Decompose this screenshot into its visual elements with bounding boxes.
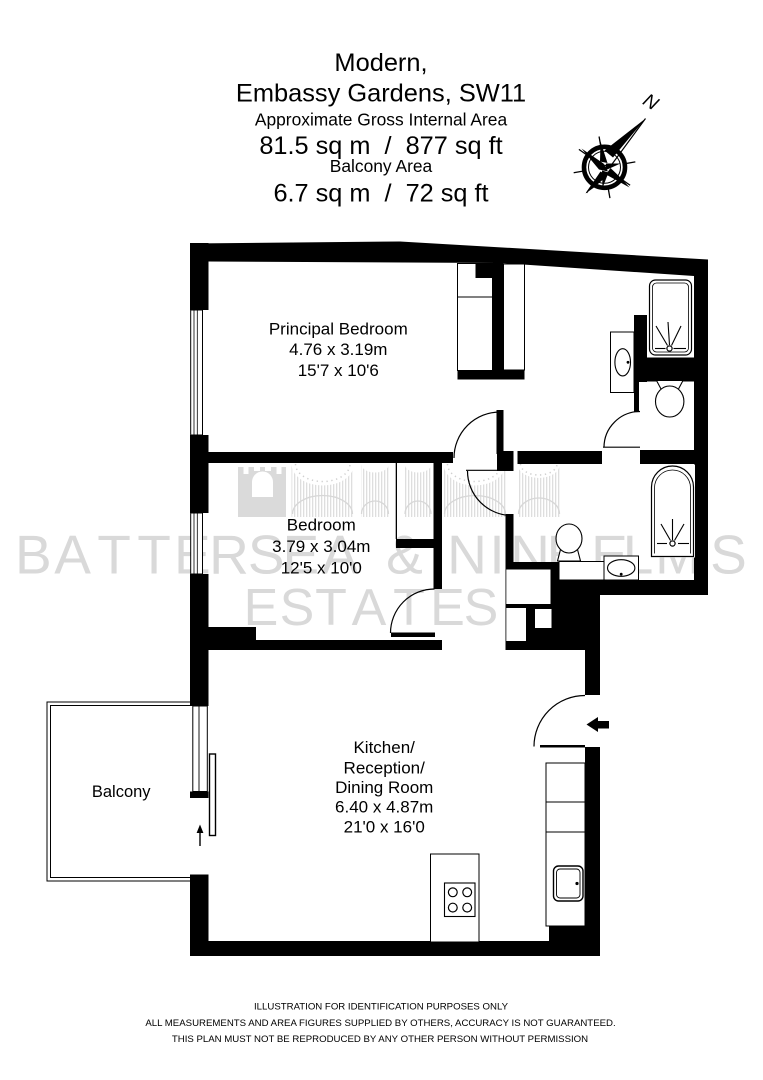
svg-text:Approximate Gross Internal Are: Approximate Gross Internal Area [255, 110, 508, 130]
svg-text:A: A [352, 579, 387, 637]
svg-text:T: T [97, 524, 131, 586]
svg-text:Reception/: Reception/ [344, 758, 426, 777]
svg-text:Balcony: Balcony [92, 783, 151, 801]
svg-text:R: R [209, 524, 249, 586]
svg-text:21'0 x 16'0: 21'0 x 16'0 [344, 817, 425, 836]
svg-text:12'5 x 10'0: 12'5 x 10'0 [281, 559, 362, 578]
svg-text:A: A [54, 524, 91, 586]
svg-text:3.79 x 3.04m: 3.79 x 3.04m [272, 537, 370, 556]
svg-text:ILLUSTRATION FOR IDENTIFICATIO: ILLUSTRATION FOR IDENTIFICATION PURPOSES… [254, 1002, 509, 1013]
svg-text:Embassy Gardens, SW11: Embassy Gardens, SW11 [236, 79, 526, 107]
svg-text:Kitchen/: Kitchen/ [353, 738, 415, 757]
svg-text:S: S [464, 579, 499, 637]
svg-text:N: N [447, 524, 487, 586]
svg-text:6.40 x 4.87m: 6.40 x 4.87m [335, 797, 433, 816]
svg-text:Bedroom: Bedroom [287, 515, 356, 534]
svg-text:B: B [15, 524, 52, 586]
svg-text:Dining Room: Dining Room [335, 778, 433, 797]
svg-text:Modern,: Modern, [334, 49, 427, 77]
svg-text:T: T [137, 524, 171, 586]
svg-text:4.76 x 3.19m: 4.76 x 3.19m [289, 340, 387, 359]
svg-text:15'7 x 10'6: 15'7 x 10'6 [298, 361, 379, 380]
svg-text:6.7 sq m / 72 sq ft: 6.7 sq m / 72 sq ft [273, 179, 488, 207]
svg-text:Balcony Area: Balcony Area [330, 156, 433, 176]
svg-text:THIS PLAN MUST NOT BE REPRODUC: THIS PLAN MUST NOT BE REPRODUCED BY ANY … [172, 1034, 588, 1045]
svg-text:T: T [315, 579, 347, 637]
svg-text:I: I [489, 524, 504, 586]
svg-text:S: S [280, 579, 315, 637]
svg-text:ALL MEASUREMENTS AND AREA FIGU: ALL MEASUREMENTS AND AREA FIGURES SUPPLI… [145, 1018, 615, 1029]
svg-text:S: S [710, 524, 747, 586]
svg-text:Principal Bedroom: Principal Bedroom [269, 320, 408, 339]
svg-text:&: & [386, 524, 423, 586]
